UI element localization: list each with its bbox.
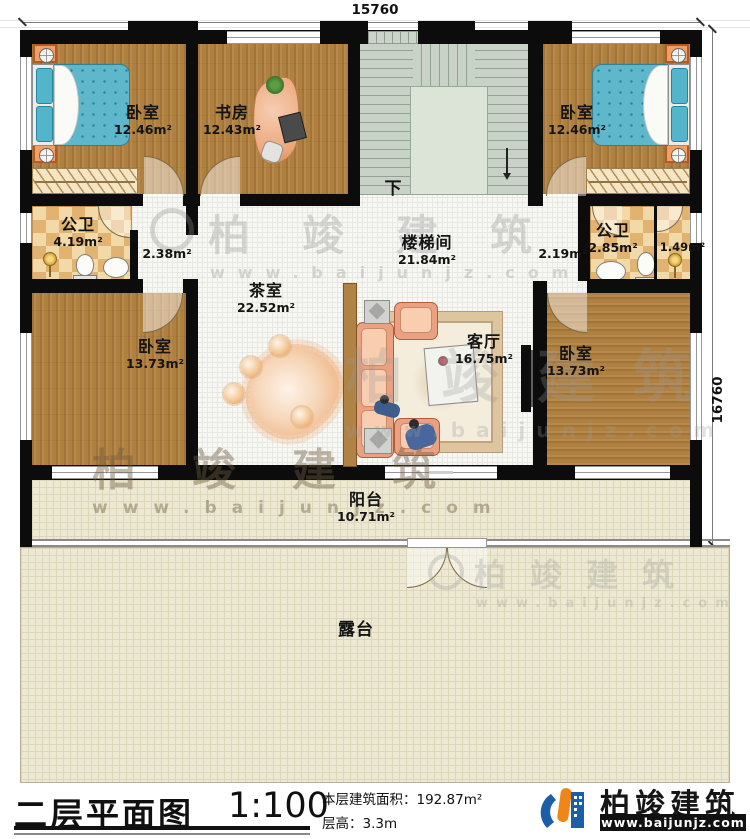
room-label-tea-room: 茶室 22.52m² xyxy=(216,281,316,315)
room-name: 卧室 xyxy=(93,103,193,122)
stair-window xyxy=(368,31,418,44)
window xyxy=(20,57,32,150)
top-dimension-label: 15760 xyxy=(337,2,413,18)
room-label-balcony: 阳台 10.71m² xyxy=(316,490,416,524)
room-label-stairwell: 楼梯间 21.84m² xyxy=(377,233,477,267)
floor-area-label: 本层建筑面积： xyxy=(322,792,417,808)
stair-flight-top xyxy=(413,42,475,90)
floor-area-info: 本层建筑面积：192.87m² xyxy=(322,788,482,808)
wall-pier xyxy=(320,21,368,30)
room-area: 21.84m² xyxy=(377,252,477,267)
floor-height-label: 层高： xyxy=(322,816,363,832)
room-name: 客厅 xyxy=(434,332,534,351)
stool xyxy=(270,336,290,356)
room-label-bedroom-tr: 卧室 12.46m² xyxy=(527,103,627,137)
wall-interior xyxy=(20,279,143,293)
pillow xyxy=(671,106,688,142)
room-area: 10.71m² xyxy=(316,509,416,524)
floor-drain xyxy=(668,253,682,267)
title-underline xyxy=(14,826,310,830)
wood-partition xyxy=(343,283,357,467)
room-name: 卧室 xyxy=(527,103,627,122)
wall-interior xyxy=(587,279,702,293)
guide-line xyxy=(0,27,750,28)
plant xyxy=(266,76,284,94)
window xyxy=(572,31,660,44)
plan-scale: 1:100 xyxy=(228,786,329,826)
room-name: 阳台 xyxy=(316,490,416,509)
brand-logo-svg xyxy=(537,782,595,836)
stair-direction-arrow xyxy=(506,148,508,174)
wall-interior xyxy=(240,194,360,206)
nightstand xyxy=(33,144,57,163)
wall-interior xyxy=(183,279,198,293)
floor-height-info: 层高：3.3m xyxy=(322,812,397,832)
sofa-cushion xyxy=(361,328,387,366)
floor-drain xyxy=(43,252,57,266)
nightstand xyxy=(665,144,689,163)
room-name: 书房 xyxy=(182,103,282,122)
brand-logo-icon xyxy=(537,782,595,836)
wall-interior xyxy=(20,194,143,206)
wall-interior xyxy=(578,194,702,206)
armchair-cushion xyxy=(400,307,432,333)
room-label-bedroom-br: 卧室 13.73m² xyxy=(526,344,626,378)
room-area: 12.46m² xyxy=(527,122,627,137)
window xyxy=(227,31,320,44)
room-area: 4.19m² xyxy=(38,234,118,249)
window xyxy=(690,57,702,150)
wall-interior xyxy=(186,281,198,467)
window xyxy=(20,333,32,440)
sink xyxy=(103,257,129,278)
wall-pier xyxy=(528,21,572,30)
stair-arrowhead xyxy=(503,173,511,180)
wardrobe xyxy=(586,168,690,194)
room-area: 12.46m² xyxy=(93,122,193,137)
person-head xyxy=(409,419,419,429)
stool xyxy=(292,407,312,427)
side-table xyxy=(364,428,392,454)
window xyxy=(52,466,158,479)
floor-area-value: 192.87m² xyxy=(417,792,483,808)
room-name: 楼梯间 xyxy=(377,233,477,252)
room-label-bathroom-left: 公卫 4.19m² xyxy=(38,215,118,249)
guide-line xyxy=(0,20,750,21)
floor-plan: 15760 16760 xyxy=(0,0,750,839)
wall-interior xyxy=(348,42,360,200)
stool xyxy=(224,384,244,404)
stool xyxy=(241,357,261,377)
room-label-living-room: 客厅 16.75m² xyxy=(434,332,534,366)
room-name: 公卫 xyxy=(573,221,653,240)
room-area: 12.43m² xyxy=(182,122,282,137)
side-table xyxy=(364,300,390,324)
stair-flight-left xyxy=(360,42,413,195)
toilet xyxy=(637,252,655,276)
room-area: 16.75m² xyxy=(434,351,534,366)
room-label-terrace: 露台 xyxy=(306,620,406,640)
pillow xyxy=(36,68,53,104)
brand-url: www.baijunjz.com xyxy=(600,814,746,831)
nightstand xyxy=(33,44,57,63)
window xyxy=(690,333,702,440)
wardrobe xyxy=(32,168,138,194)
room-name: 卧室 xyxy=(105,337,205,356)
wall-interior xyxy=(183,194,200,206)
window xyxy=(575,466,670,479)
railing xyxy=(20,539,730,541)
room-area: 13.73m² xyxy=(526,363,626,378)
room-label-bedroom-bl: 卧室 13.73m² xyxy=(105,337,205,371)
room-name: 露台 xyxy=(306,620,406,640)
room-label-bedroom-tl: 卧室 12.46m² xyxy=(93,103,193,137)
right-dimension-line xyxy=(712,30,713,547)
room-name: 卧室 xyxy=(526,344,626,363)
drain-stem xyxy=(49,265,51,277)
terrace-floor xyxy=(20,547,730,783)
closet-area-label: 1.49m² xyxy=(655,240,710,254)
pillow xyxy=(671,68,688,104)
wall-pier xyxy=(128,21,198,30)
pillow xyxy=(36,106,53,142)
stair-landing xyxy=(410,86,488,195)
sliding-door xyxy=(385,466,497,479)
person-head xyxy=(380,395,389,404)
room-area: 22.52m² xyxy=(216,300,316,315)
nightstand xyxy=(665,44,689,63)
wall-pier xyxy=(418,21,475,30)
room-area: 13.73m² xyxy=(105,356,205,371)
passage-area-right: 2.19m² xyxy=(528,246,598,261)
window xyxy=(20,213,32,243)
balcony-door-frame xyxy=(407,538,487,548)
stair-down-label: 下 xyxy=(380,179,406,199)
room-name: 茶室 xyxy=(216,281,316,300)
title-underline-thin xyxy=(14,833,310,835)
wall-interior xyxy=(186,42,198,235)
right-dimension-label: 16760 xyxy=(710,370,726,430)
room-label-study: 书房 12.43m² xyxy=(182,103,282,137)
window xyxy=(690,213,702,243)
floor-height-value: 3.3m xyxy=(363,816,398,832)
passage-area-left: 2.38m² xyxy=(132,246,202,261)
toilet xyxy=(76,254,94,276)
room-name: 公卫 xyxy=(38,215,118,234)
drain-stem xyxy=(674,266,676,278)
